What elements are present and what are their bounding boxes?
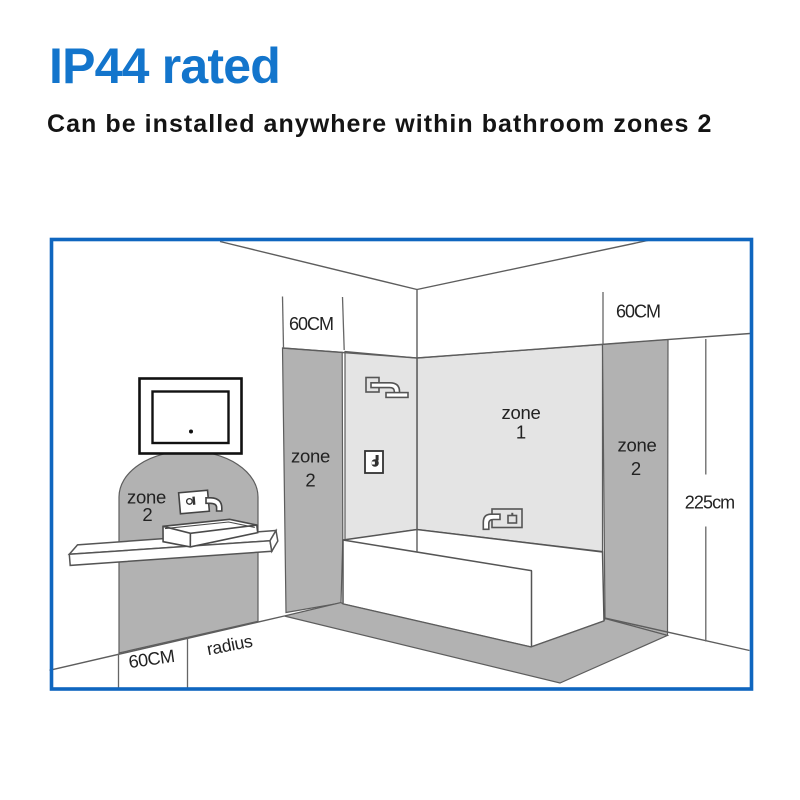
svg-text:2: 2: [142, 504, 152, 525]
svg-text:225cm: 225cm: [685, 493, 735, 513]
svg-text:radius: radius: [205, 631, 254, 659]
svg-text:zone: zone: [502, 402, 541, 423]
svg-text:60CM: 60CM: [616, 302, 660, 322]
svg-text:1: 1: [516, 422, 526, 443]
svg-text:zone: zone: [618, 435, 657, 456]
svg-text:zone: zone: [291, 446, 330, 467]
svg-text:2: 2: [305, 470, 315, 491]
svg-text:2: 2: [631, 458, 641, 479]
svg-text:60CM: 60CM: [289, 314, 333, 334]
